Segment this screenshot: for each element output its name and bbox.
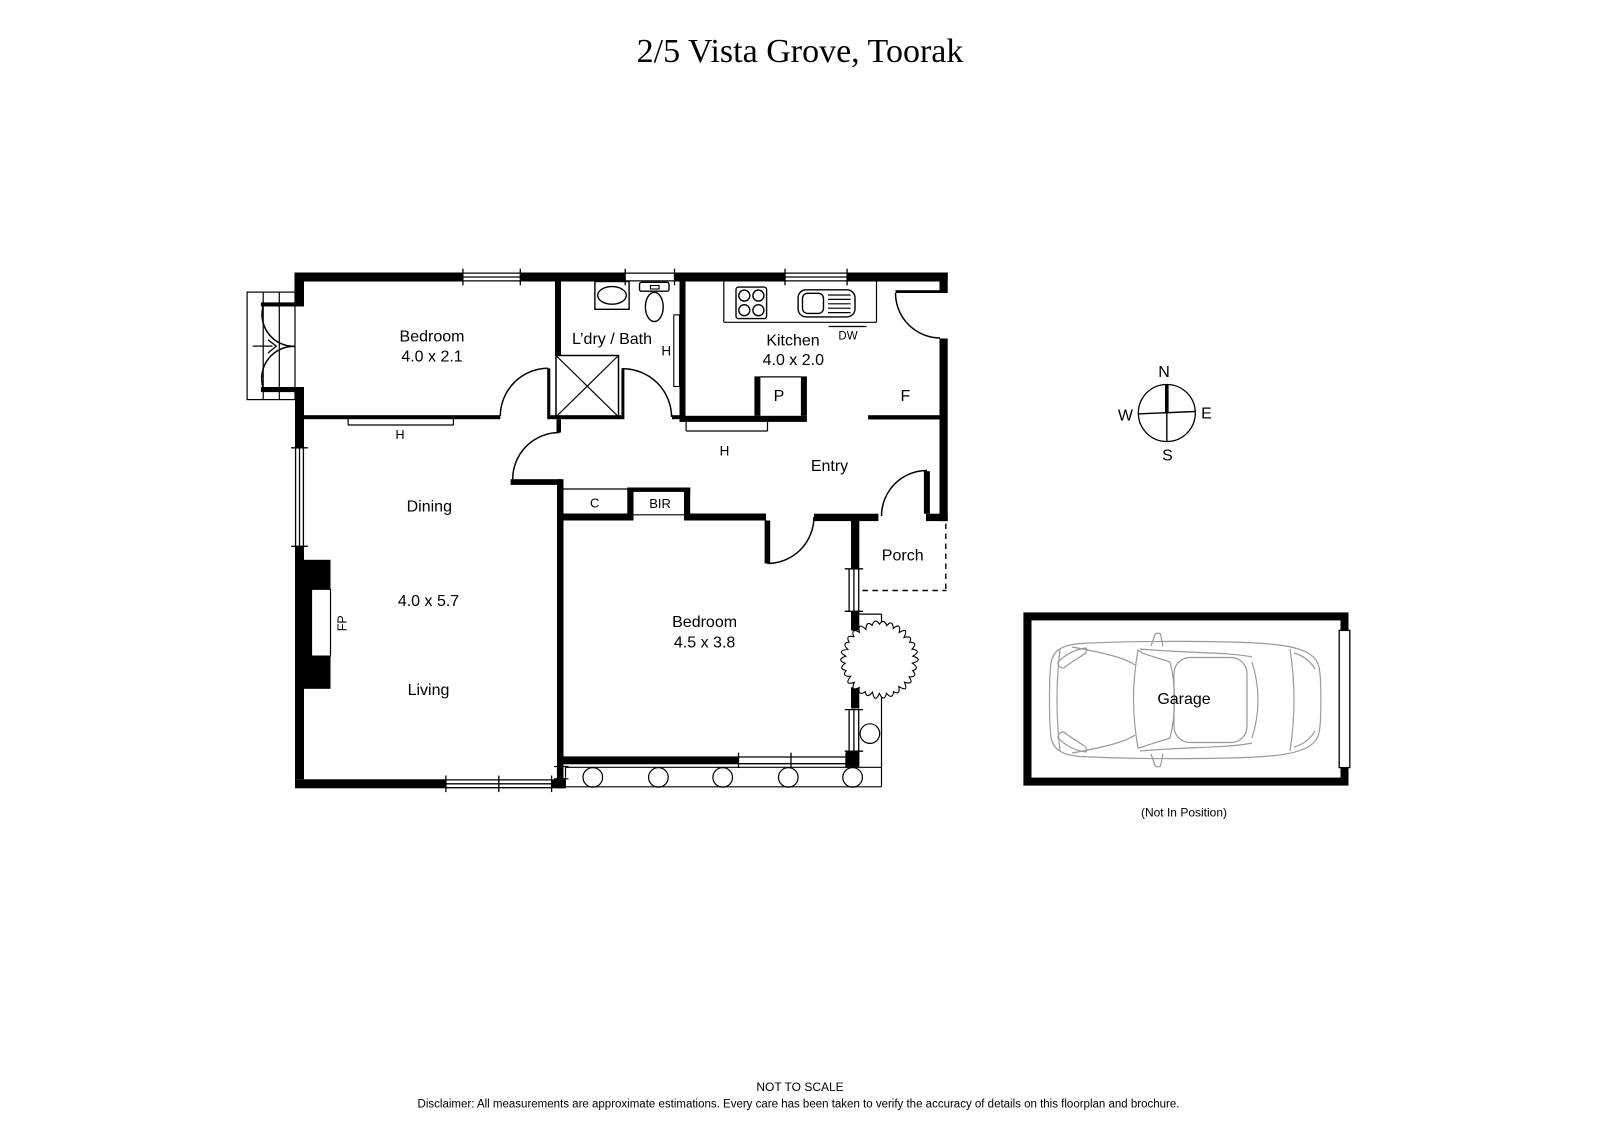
svg-text:(Not In Position): (Not In Position)	[1141, 806, 1227, 820]
svg-text:S: S	[1162, 448, 1173, 465]
svg-text:W: W	[1118, 407, 1134, 424]
svg-text:FP: FP	[336, 615, 350, 631]
svg-text:Porch: Porch	[882, 547, 924, 564]
svg-text:H: H	[720, 444, 730, 459]
svg-text:Bedroom: Bedroom	[672, 614, 737, 631]
svg-text:Bedroom: Bedroom	[400, 329, 465, 346]
svg-text:Living: Living	[408, 682, 450, 699]
svg-text:H: H	[395, 428, 404, 442]
svg-text:4.0 x 2.1: 4.0 x 2.1	[401, 349, 462, 366]
svg-text:NOT TO SCALE: NOT TO SCALE	[756, 1080, 843, 1094]
svg-text:Garage: Garage	[1157, 691, 1210, 708]
svg-text:L’dry / Bath: L’dry / Bath	[572, 331, 652, 348]
svg-text:BIR: BIR	[649, 496, 671, 511]
svg-text:E: E	[1201, 406, 1212, 423]
svg-text:F: F	[901, 388, 911, 405]
svg-text:Kitchen: Kitchen	[766, 333, 819, 350]
svg-text:2/5 Vista Grove, Toorak: 2/5 Vista Grove, Toorak	[637, 33, 964, 70]
svg-text:DW: DW	[838, 331, 857, 343]
svg-text:H: H	[661, 344, 671, 359]
svg-text:4.0 x 2.0: 4.0 x 2.0	[763, 352, 824, 369]
svg-text:P: P	[774, 388, 785, 405]
svg-text:Disclaimer: All measurements a: Disclaimer: All measurements are approxi…	[418, 1099, 1180, 1111]
svg-text:N: N	[1158, 364, 1170, 381]
svg-text:Dining: Dining	[407, 498, 452, 515]
svg-text:C: C	[590, 496, 599, 511]
svg-text:4.0 x 5.7: 4.0 x 5.7	[398, 593, 459, 610]
svg-text:Entry: Entry	[811, 458, 848, 475]
svg-text:4.5 x 3.8: 4.5 x 3.8	[674, 635, 735, 652]
